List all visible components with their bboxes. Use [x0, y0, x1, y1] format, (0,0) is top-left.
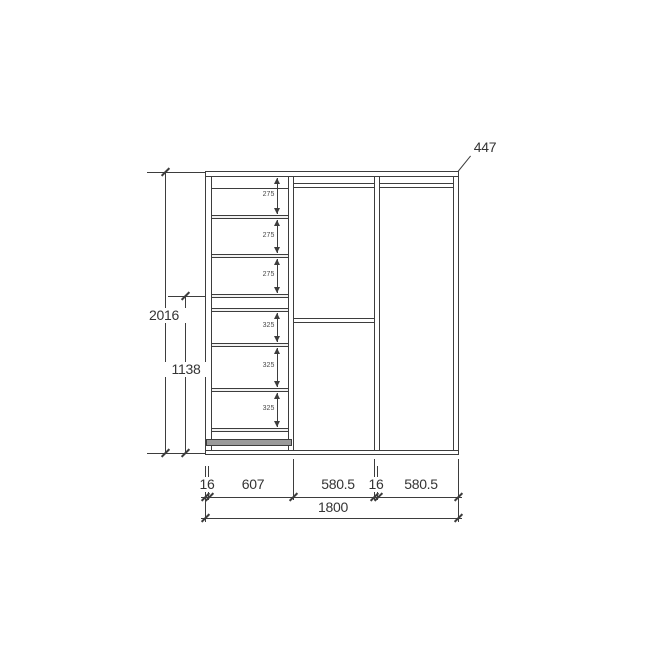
segment-dimension-line: [201, 497, 462, 498]
arrow-up-icon: [274, 393, 280, 399]
arrow-down-icon: [274, 287, 280, 293]
right-section-top-rail: [380, 183, 453, 188]
right-side-panel-outer: [458, 171, 459, 455]
segment-width-label: 580.5: [397, 477, 445, 492]
shelf: [212, 254, 288, 258]
shelf: [212, 215, 288, 219]
cabinet-top-edge-outer: [205, 171, 459, 172]
extension-line-bottom: [147, 453, 205, 454]
arrow-up-icon: [274, 220, 280, 226]
left-column-base-band: [206, 439, 292, 446]
wardrobe-technical-drawing: 275 275 275 325 325 325 2016 1138 16 607…: [0, 0, 672, 672]
extension-line: [458, 459, 459, 522]
right-side-panel-inner: [453, 177, 454, 451]
cabinet-top-edge-inner: [205, 176, 459, 177]
arrow-up-icon: [274, 348, 280, 354]
arrow-down-icon: [274, 336, 280, 342]
divider-1-right-line: [293, 177, 294, 451]
total-width-dimension-line: [201, 518, 462, 519]
arrow-down-icon: [274, 421, 280, 427]
divider-2-left-line: [374, 177, 375, 451]
middle-section-top-rail: [294, 183, 374, 188]
segment-width-label: 16: [361, 477, 391, 492]
shelf: [212, 428, 288, 432]
divider-2-right-line: [379, 177, 380, 451]
arrow-up-icon: [274, 313, 280, 319]
left-side-panel-outer: [205, 171, 206, 455]
segment-width-label: 580.5: [314, 477, 362, 492]
extension-line-top: [147, 172, 205, 173]
callout-leader-line: [458, 156, 471, 172]
middle-section-shelf: [294, 318, 374, 323]
gap-dimension-label: 275: [261, 191, 276, 199]
shelf: [212, 294, 288, 298]
gap-dimension-label: 325: [261, 405, 276, 413]
arrow-down-icon: [274, 208, 280, 214]
gap-dimension-label: 275: [261, 271, 276, 279]
arrow-down-icon: [274, 247, 280, 253]
shelf: [212, 308, 288, 312]
gap-dimension-label: 325: [261, 362, 276, 370]
shelf: [212, 388, 288, 392]
arrow-up-icon: [274, 259, 280, 265]
arrow-down-icon: [274, 381, 280, 387]
segment-width-label: 607: [233, 477, 273, 492]
cabinet-bottom-edge-inner: [206, 450, 458, 451]
divider-1-left-line: [288, 177, 289, 451]
arrow-up-icon: [274, 178, 280, 184]
total-width-label: 1800: [311, 500, 355, 515]
callout-label: 447: [469, 140, 501, 155]
partial-height-label: 1138: [164, 362, 208, 377]
total-height-label: 2016: [142, 308, 186, 323]
cabinet-bottom-edge-outer: [205, 454, 459, 455]
segment-width-label: 16: [192, 477, 222, 492]
gap-dimension-label: 325: [261, 322, 276, 330]
gap-dimension-label: 275: [261, 232, 276, 240]
shelf: [212, 343, 288, 347]
